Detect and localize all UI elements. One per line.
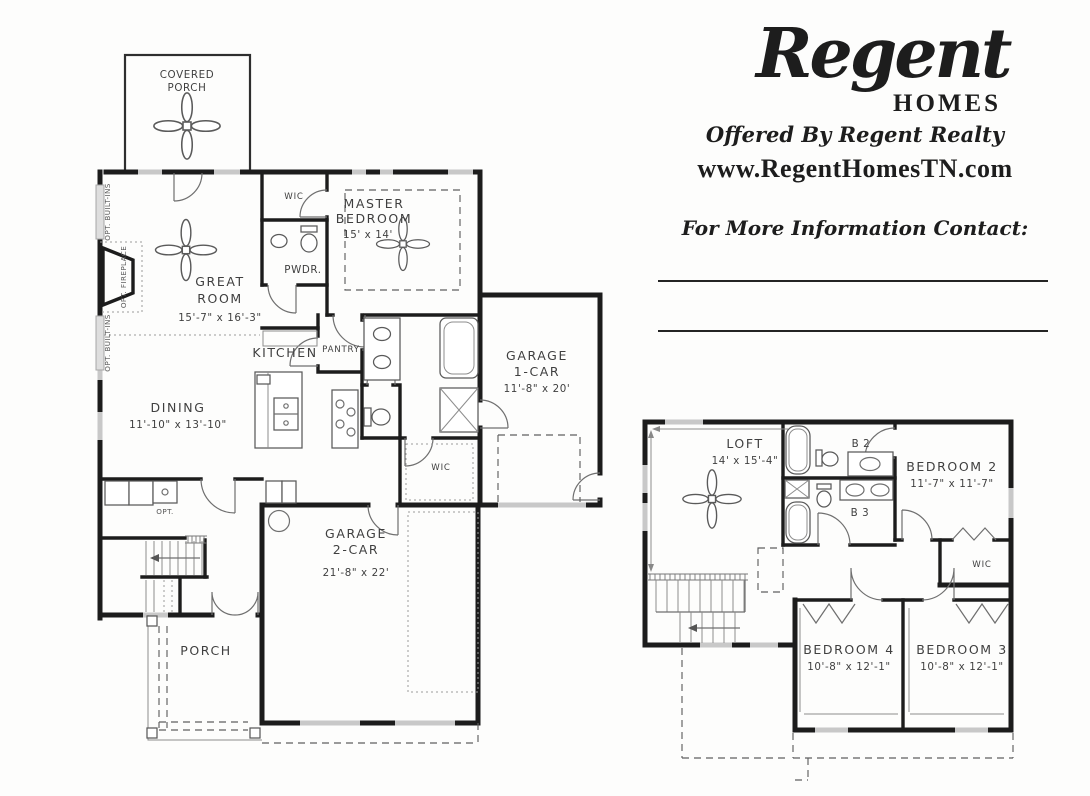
closet-bifold-door — [956, 604, 1008, 623]
sink-icon — [374, 356, 391, 369]
garage2-dims: 21'-8" x 22' — [323, 567, 390, 579]
dining-dims: 11'-10" x 13'-10" — [129, 419, 227, 431]
ceiling-fan-icon — [154, 93, 220, 159]
garage2-label2: 2-CAR — [333, 542, 379, 557]
garage1-label2: 1-CAR — [514, 364, 560, 379]
covered-porch-label: COVERED — [160, 69, 214, 81]
second-floor-plan: LOFT 14' x 15'-4" B 2 BEDROOM 2 11'-7" x… — [645, 422, 1013, 780]
bedroom2-door — [902, 510, 932, 540]
bathtub-icon — [786, 502, 810, 543]
opt-fireplace-label: OPT. FIREPLACE — [119, 246, 128, 308]
vanity — [840, 480, 893, 500]
opt-sink-icon — [153, 481, 177, 503]
garage1-label: GARAGE — [506, 348, 568, 363]
garage2-label: GARAGE — [325, 526, 387, 541]
foyer-cabinets — [105, 481, 177, 505]
cooktop-icon — [332, 390, 358, 448]
stairs — [146, 536, 207, 612]
master-bedroom-dims: 15' x 14' — [343, 229, 393, 241]
bedroom4-label: BEDROOM 4 — [803, 642, 895, 657]
front-door — [212, 592, 258, 615]
garage-markings — [408, 435, 580, 692]
sink-icon — [257, 375, 270, 384]
contact-blank-line — [658, 280, 1048, 282]
great-room-label2: ROOM — [197, 291, 243, 306]
bath3-label: B 3 — [851, 507, 870, 519]
ceiling-fan-icon — [156, 220, 217, 281]
powder-label: PWDR. — [284, 264, 321, 276]
contact-heading: For More Information Contact: — [640, 216, 1070, 240]
offered-by-text: Offered By Regent Realty — [640, 122, 1070, 147]
bathtub-icon — [440, 318, 478, 378]
bedroom2-dims: 11'-7" x 11'-7" — [910, 478, 994, 490]
fireplace-icon — [103, 248, 133, 305]
dining-label: DINING — [151, 400, 206, 415]
porch-to-greatroom-door — [174, 173, 202, 201]
garage1-side-door — [573, 473, 600, 500]
porch-label: PORCH — [180, 643, 232, 658]
logo-homes-text: HOMES — [893, 90, 1001, 118]
porch-column — [147, 616, 157, 626]
toilet-icon — [817, 491, 831, 507]
great-room-dims: 15'-7" x 16'-3" — [178, 312, 262, 324]
master-bedroom-label: MASTER — [343, 196, 404, 211]
flyer-page: COVERED PORCH WIC MASTER BEDROOM 15' x 1… — [0, 0, 1090, 796]
vanity — [848, 452, 893, 476]
pantry-label: PANTRY — [322, 345, 360, 355]
sink-icon — [374, 328, 391, 341]
toilet-icon — [372, 409, 390, 425]
garage1-entry-door — [480, 400, 508, 428]
covered-porch-label2: PORCH — [168, 82, 207, 94]
water-heater-icon — [269, 511, 290, 532]
garage1-dims: 11'-8" x 20' — [504, 383, 571, 395]
kitchen-island — [255, 372, 302, 448]
bath3 — [785, 480, 893, 543]
toilet-icon — [301, 234, 317, 252]
bath3-door — [818, 513, 850, 545]
toilet-icon — [822, 452, 838, 466]
loft-dims: 14' x 15'-4" — [712, 455, 779, 467]
great-room-label: GREAT — [195, 274, 245, 289]
bedroom4-dims: 10'-8" x 12'-1" — [807, 661, 891, 673]
powder-door — [268, 285, 296, 313]
master-bath — [364, 318, 478, 432]
ceiling-fan-icon — [683, 470, 741, 528]
kitchen-label: KITCHEN — [252, 345, 317, 360]
website-text: www.RegentHomesTN.com — [640, 154, 1070, 184]
powder-room — [271, 226, 317, 252]
first-floor-plan: COVERED PORCH WIC MASTER BEDROOM 15' x 1… — [96, 55, 600, 743]
floor-plan-drawing: COVERED PORCH WIC MASTER BEDROOM 15' x 1… — [0, 0, 1090, 796]
opt-builtins-label: OPT. BUILT-INS — [103, 183, 112, 240]
logo-script-text: Regent — [756, 14, 1009, 94]
bedroom4-door — [851, 568, 883, 600]
foyer-door — [201, 479, 235, 513]
porch-column — [147, 728, 157, 738]
stairs-arrow-icon — [688, 624, 697, 632]
wic-label: WIC — [972, 560, 991, 570]
stairs — [648, 574, 748, 643]
opt-sink-label: OPT. — [156, 507, 173, 516]
bath2-label: B 2 — [852, 438, 871, 450]
master-wic-label: WIC — [284, 192, 303, 202]
master-bedroom-label2: BEDROOM — [336, 211, 412, 226]
loft-label: LOFT — [726, 436, 763, 451]
wic-hall-door — [405, 438, 433, 466]
contact-blank-line — [658, 330, 1048, 332]
master-door — [333, 315, 365, 347]
porch-column — [250, 728, 260, 738]
master-wic-door — [300, 190, 327, 217]
opt-builtins-label2: OPT. BUILT-INS — [103, 314, 112, 371]
bedroom2-label: BEDROOM 2 — [906, 459, 998, 474]
hall-wic-label: WIC — [431, 463, 450, 473]
wic-bifold-door — [952, 528, 996, 540]
sink-icon — [271, 235, 287, 248]
bedroom3-dims: 10'-8" x 12'-1" — [920, 661, 1004, 673]
bedroom3-label: BEDROOM 3 — [916, 642, 1008, 657]
closet-bifold-door — [803, 604, 855, 623]
